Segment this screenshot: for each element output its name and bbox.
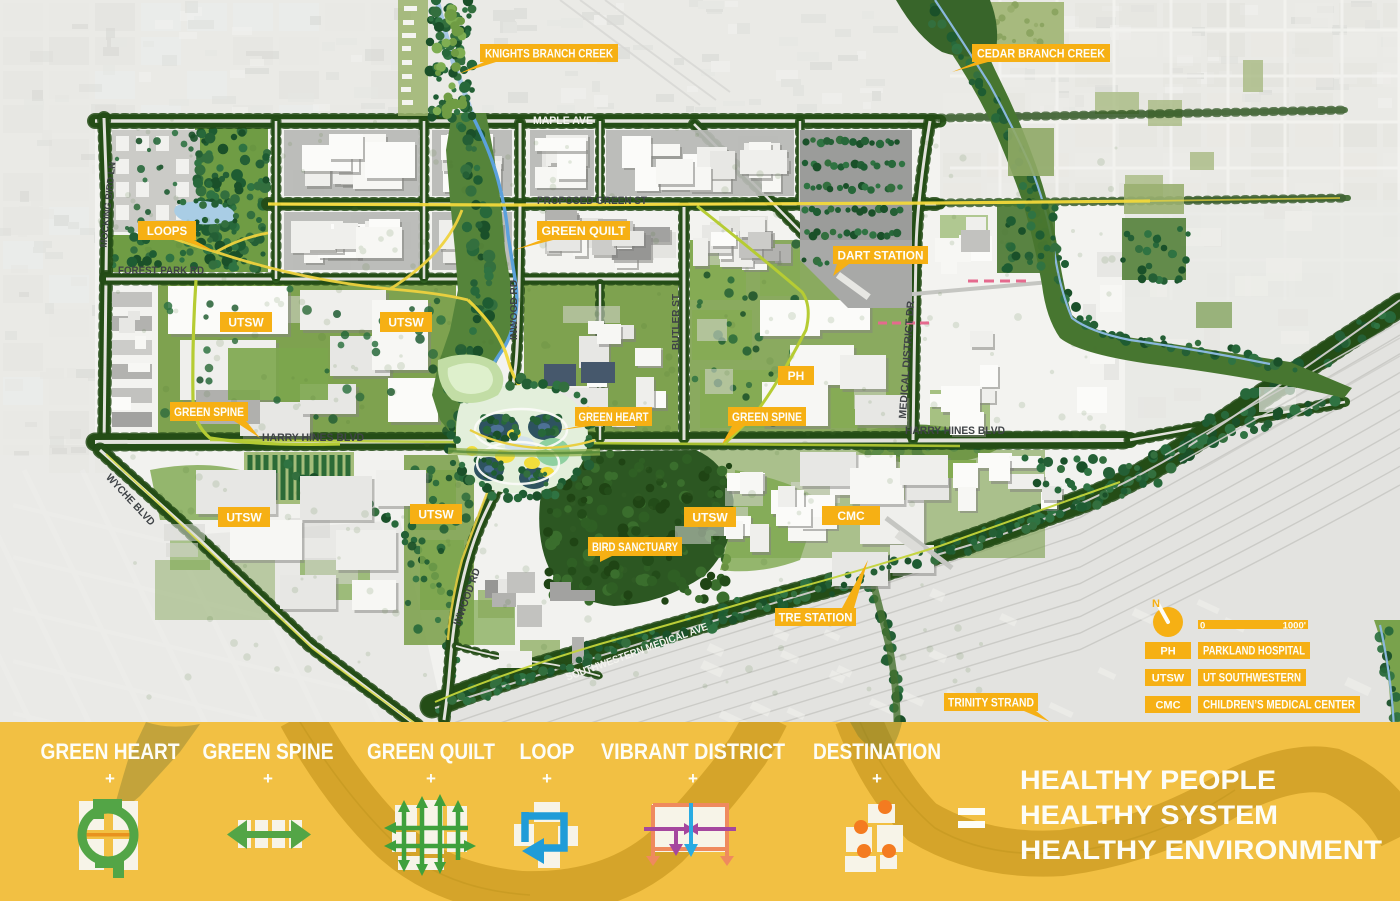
svg-text:+: + — [263, 769, 273, 788]
svg-text:LOOPS: LOOPS — [147, 226, 188, 238]
svg-text:N: N — [1152, 598, 1160, 610]
svg-text:+: + — [105, 769, 115, 788]
svg-text:TRINITY STRAND: TRINITY STRAND — [948, 698, 1034, 710]
svg-text:GREEN QUILT: GREEN QUILT — [542, 226, 626, 238]
svg-text:1000': 1000' — [1283, 621, 1306, 632]
svg-text:HEALTHY SYSTEM: HEALTHY SYSTEM — [1020, 800, 1278, 830]
svg-text:BUTLER ST: BUTLER ST — [670, 293, 682, 350]
svg-text:0: 0 — [1200, 621, 1205, 632]
svg-text:DART STATION: DART STATION — [838, 251, 924, 263]
svg-text:GREEN SPINE: GREEN SPINE — [203, 739, 334, 764]
svg-text:CMC: CMC — [1155, 700, 1180, 712]
svg-text:HEALTHY ENVIRONMENT: HEALTHY ENVIRONMENT — [1020, 835, 1383, 865]
svg-text:HARRY HINES BLVD: HARRY HINES BLVD — [905, 425, 1005, 437]
svg-text:CMC: CMC — [837, 509, 865, 523]
svg-text:FOREST PARK RD: FOREST PARK RD — [118, 265, 204, 277]
svg-text:PH: PH — [788, 369, 805, 383]
svg-text:UTSW: UTSW — [692, 511, 728, 525]
svg-text:KNIGHTS BRANCH CREEK: KNIGHTS BRANCH CREEK — [485, 49, 614, 61]
svg-text:BIRD SANCTUARY: BIRD SANCTUARY — [592, 542, 678, 554]
svg-text:INWOOD RD: INWOOD RD — [508, 280, 520, 340]
svg-text:GREEN QUILT: GREEN QUILT — [367, 739, 495, 764]
svg-text:PARKLAND HOSPITAL: PARKLAND HOSPITAL — [1203, 646, 1305, 658]
svg-text:TRE STATION: TRE STATION — [779, 613, 853, 625]
svg-text:UT SOUTHWESTERN: UT SOUTHWESTERN — [1203, 673, 1301, 685]
svg-text:UTSW: UTSW — [1152, 673, 1185, 685]
svg-text:GREEN HEART: GREEN HEART — [41, 739, 180, 764]
svg-text:+: + — [688, 769, 698, 788]
svg-text:CEDAR BRANCH CREEK: CEDAR BRANCH CREEK — [977, 49, 1106, 61]
svg-text:+: + — [542, 769, 552, 788]
svg-text:+: + — [426, 769, 436, 788]
svg-text:VIBRANT DISTRICT: VIBRANT DISTRICT — [601, 739, 786, 764]
svg-text:HARRY HINES BLVD: HARRY HINES BLVD — [262, 432, 364, 444]
svg-text:CHILDREN’S MEDICAL CENTER: CHILDREN’S MEDICAL CENTER — [1203, 700, 1356, 712]
svg-text:GREEN SPINE: GREEN SPINE — [174, 407, 244, 419]
svg-text:GREEN HEART: GREEN HEART — [579, 412, 649, 424]
svg-text:+: + — [872, 769, 882, 788]
svg-text:HEALTHY PEOPLE: HEALTHY PEOPLE — [1020, 765, 1276, 795]
svg-text:PROPOSED GREEN ST: PROPOSED GREEN ST — [537, 195, 647, 207]
svg-text:UTSW: UTSW — [418, 508, 454, 522]
svg-text:UTSW: UTSW — [226, 511, 262, 525]
svg-text:UTSW: UTSW — [228, 316, 264, 330]
svg-text:MAPLE AVE: MAPLE AVE — [533, 115, 593, 127]
svg-text:LOOP: LOOP — [520, 739, 575, 764]
svg-text:UTSW: UTSW — [388, 316, 424, 330]
svg-text:DESTINATION: DESTINATION — [813, 739, 941, 764]
svg-text:GREEN SPINE: GREEN SPINE — [732, 412, 802, 424]
svg-text:PH: PH — [1160, 646, 1175, 658]
